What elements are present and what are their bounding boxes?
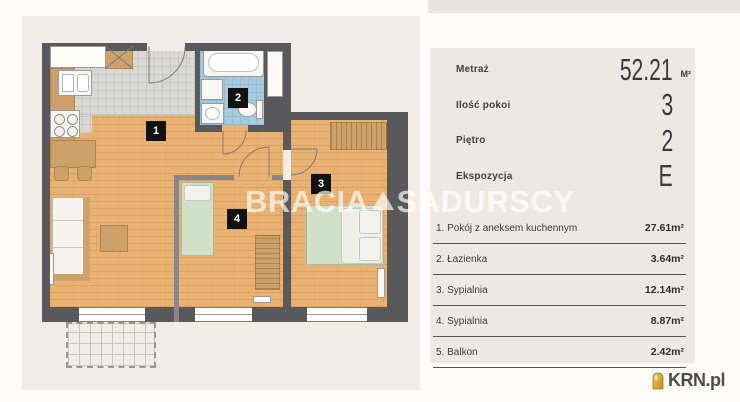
wardrobe-bedroom3 [330,122,387,150]
pillow [184,185,211,201]
burner [54,114,65,125]
room-area-row: 5. Balkon 2.42m² [433,337,686,368]
kitchen-sink [58,70,92,96]
burner [67,114,78,125]
room-name: 2. Łazienka [436,254,487,265]
room-tag-1: 1 [146,121,166,141]
sink-drainer [77,74,89,92]
spec-label: Ilość pokoi [456,100,510,111]
room-area-value: 8.87m² [651,315,684,327]
kitchen-window [50,46,106,68]
spec-unit: M² [681,69,692,79]
room-area-value: 3.64m² [651,253,684,265]
krn-logo-text: KRN.pl [668,370,725,391]
spec-row: Metraż 52.21 M² [430,52,695,88]
dining-table [50,140,96,168]
room-name: 3. Sypialnia [436,285,488,296]
room-area-value: 2.42m² [651,346,684,358]
room-area-value: 12.14m² [645,284,684,296]
stove [50,110,80,138]
wall [185,43,291,51]
bathtub-inner [208,53,259,72]
wall [195,51,200,131]
wall [283,120,291,150]
spec-row: Ilość pokoi 3 [430,88,695,124]
room-tag-2: 2 [228,88,248,108]
spec-label: Ekspozycja [456,171,512,182]
sofa [52,197,90,281]
floorplan-listing-image: 1 2 3 4 BRACIASADURSCY Metraż 52.21 M² I… [0,0,740,402]
dining-chair [54,166,69,181]
spec-value: 2 [661,123,673,159]
toilet-tank [256,100,263,119]
agency-watermark: BRACIASADURSCY [245,184,575,220]
window [307,307,367,322]
shower-sink [201,103,224,124]
watermark-part1: BRACIA [245,184,369,219]
room-area-row: 2. Łazienka 3.64m² [433,244,686,275]
burner [67,126,78,137]
wall [252,307,307,322]
dining-chair [77,166,92,181]
room-tag-4: 4 [227,209,247,229]
wall [42,43,50,322]
spec-list: Metraż 52.21 M² Ilość pokoi 3 Piętro 2 E… [430,52,695,194]
wall [283,43,291,120]
wall [42,307,80,322]
window [79,307,145,322]
room-area-value: 27.61m² [645,222,684,234]
bed-bedroom4 [181,182,214,256]
radiator [253,296,271,303]
window [195,307,252,322]
wardrobe-bedroom4 [255,235,280,290]
burner [54,126,65,137]
top-strip [428,0,740,13]
room-name: 5. Balkon [436,347,478,358]
spec-value: 3 [661,87,673,123]
room-area-row: 4. Sypialnia 8.87m² [433,306,686,337]
wall [283,112,387,120]
installation-shaft [267,51,283,97]
partition-wall [174,178,179,322]
room-area-list: 1. Pokój z aneksem kuchennym 27.61m² 2. … [433,213,686,368]
bathtub [203,48,264,77]
sink-basin [62,74,74,92]
spec-label: Metraż [456,64,489,75]
krn-logo-icon [650,371,666,390]
balcony-floor [66,322,156,368]
radiator [377,268,385,298]
room-area-row: 3. Sypialnia 12.14m² [433,275,686,306]
wall [195,125,222,132]
wall [145,307,195,322]
room-name: 4. Sypialnia [436,316,488,327]
basin-bowl [205,107,220,120]
coffee-table [100,225,128,252]
pillow [359,237,381,261]
spec-label: Piętro [456,135,486,146]
wall [267,97,283,127]
watermark-part2: SADURSCY [397,184,575,219]
washbasin [201,79,223,100]
spec-row: Piętro 2 [430,123,695,159]
spec-value: 52.21 [620,52,673,88]
partition-wall [174,175,234,180]
krn-logo[interactable]: KRN.pl [650,370,725,391]
room-name: 1. Pokój z aneksem kuchennym [436,223,577,234]
partition-wall [272,175,283,180]
watermark-triangle-icon [372,191,394,210]
spec-value: E [659,158,673,194]
